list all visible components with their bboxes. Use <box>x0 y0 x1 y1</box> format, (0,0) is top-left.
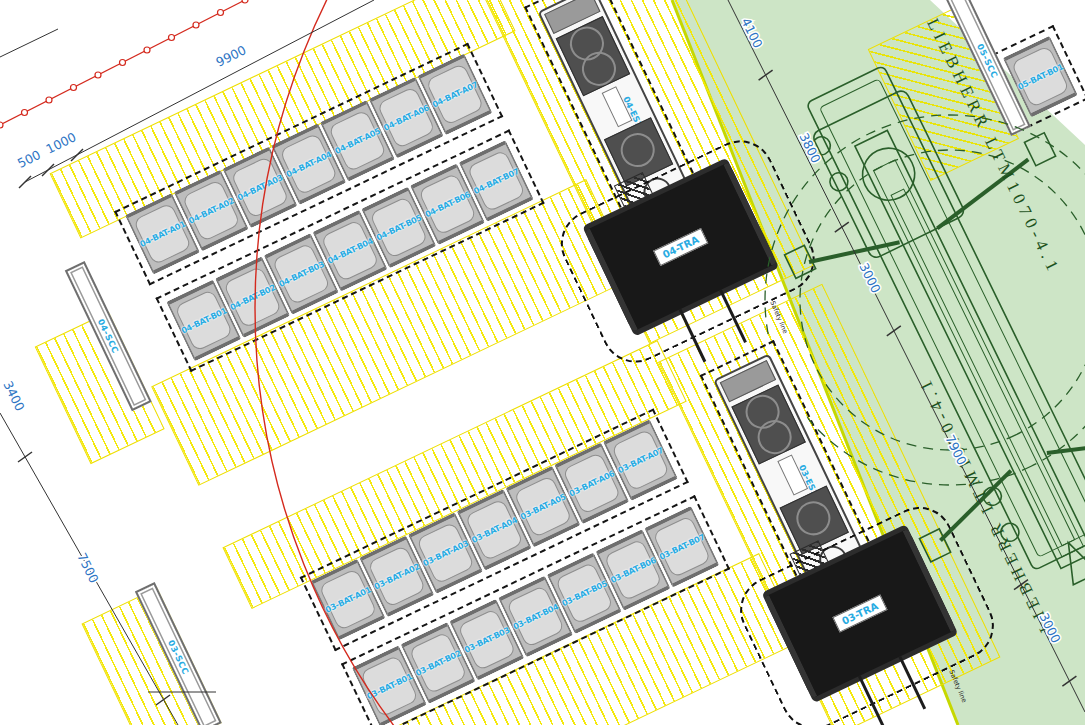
dimension-line-left <box>0 413 216 725</box>
dimension-label-4100: 4100 <box>738 15 766 50</box>
dimension-label-7900: 7900 <box>942 432 970 467</box>
dimension-line-top <box>0 0 374 188</box>
dimension-label-3000a: 3000 <box>856 260 884 295</box>
safety-line-label-lower: Safety line <box>947 669 968 704</box>
dimension-label-500: 500 <box>15 147 43 171</box>
dimension-label-3800: 3800 <box>796 130 824 165</box>
dimension-line-crane-axis <box>728 0 1085 712</box>
dimension-label-3400: 3400 <box>0 378 28 413</box>
safety-line-label-upper: Safety line <box>768 300 789 335</box>
dimension-label-3000b: 3000 <box>1036 610 1064 645</box>
annotation-layer: 500 1000 9900 3400 7500 4100 3800 3000 7… <box>0 0 1085 725</box>
fence-line <box>0 0 248 128</box>
dimension-label-1000: 1000 <box>43 129 78 157</box>
crane-radius-arc <box>255 0 1085 725</box>
dimension-label-9900: 9900 <box>213 42 248 70</box>
site-plan-drawing: 04-BAT-A0104-BAT-A0204-BAT-A0304-BAT-A04… <box>0 0 1085 725</box>
dimension-label-7500: 7500 <box>74 550 102 585</box>
